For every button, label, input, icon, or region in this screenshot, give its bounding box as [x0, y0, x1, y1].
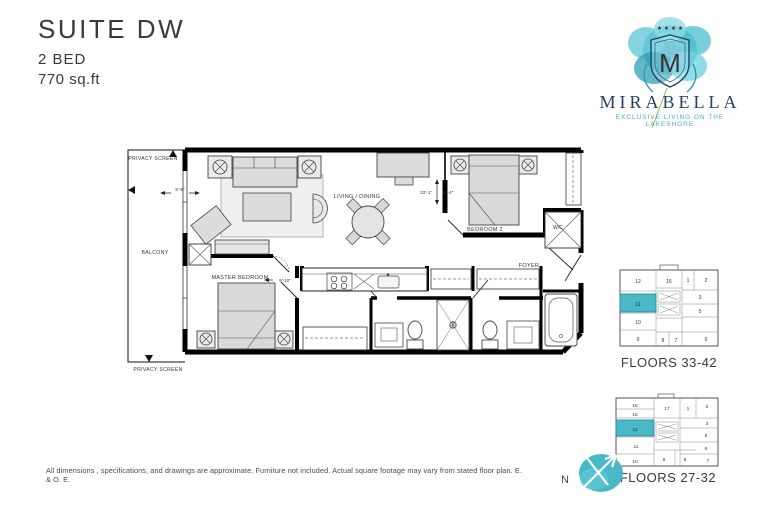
- unit-number: 1: [687, 278, 690, 284]
- logo-stars-icon: ★ ★ ★ ★: [657, 25, 684, 32]
- room-label-wc: W/C: [553, 225, 563, 231]
- main-bath: [375, 300, 469, 350]
- bedroom2-closet: [566, 153, 581, 205]
- unit-number: 8: [662, 338, 665, 344]
- unit-number: 9: [637, 337, 640, 343]
- room-label-bedroom2: BEDROOM 2: [467, 227, 503, 233]
- brand-tagline: EXCLUSIVE LIVING ON THE LAKESHORE: [595, 114, 745, 128]
- unit-number: 12: [635, 279, 641, 285]
- ensuite-bath: [482, 294, 577, 349]
- room-label-foyer: FOYER: [519, 263, 539, 269]
- floorplan-drawing: W/C: [115, 133, 605, 378]
- balcony-outline: [128, 150, 185, 362]
- unit-number: 1: [687, 406, 690, 412]
- keyplan-floors-33-42: 12 16 1 2 11 3 10 5 9 8 7 6: [616, 260, 722, 352]
- unit-number: 7: [675, 338, 678, 344]
- north-label: N: [561, 474, 569, 486]
- dim-living-depth: 11'-4": [442, 190, 454, 195]
- unit-number: 8: [684, 457, 687, 463]
- floorplan-sheet: SUITE DW 2 BED 770 sq.ft ★ ★ ★ ★ M MIRAB…: [0, 0, 760, 505]
- brand-logo: ★ ★ ★ ★ M MIRABELLA EXCLUSIVE LIVING ON …: [595, 6, 745, 130]
- unit-number: 2: [705, 278, 708, 284]
- disclaimer-text: All dimensions , specifications, and dra…: [46, 466, 526, 484]
- living-furniture: [191, 153, 429, 244]
- unit-number: 15: [632, 412, 638, 418]
- keyplan-caption-33-42: FLOORS 33-42: [599, 355, 739, 370]
- brand-name: MIRABELLA: [595, 92, 745, 113]
- unit-number: 3: [706, 421, 709, 427]
- dim-arrow-icon: [145, 355, 153, 362]
- unit-number: 2: [706, 404, 709, 410]
- privacy-screen-bottom-label: PRIVACY SCREEN: [133, 367, 182, 373]
- bed-count: 2 BED: [38, 51, 185, 68]
- unit-number: 10: [635, 320, 641, 326]
- unit-number: 6: [705, 446, 708, 452]
- dim-kitchen: 9'-10": [279, 278, 291, 283]
- kitchen: [302, 268, 427, 291]
- bedroom2-furniture: [451, 155, 537, 225]
- unit-number: 5: [699, 309, 702, 315]
- room-label-living-dining: LIVING / DINING: [334, 194, 380, 200]
- room-label-balcony: BALCONY: [142, 250, 169, 256]
- dim-living-width: 22'-1": [420, 190, 432, 195]
- dim-balcony-door: 5'-9": [175, 187, 185, 192]
- unit-number: 5: [705, 433, 708, 439]
- unit-number: 6: [705, 337, 708, 343]
- wc-closet: W/C: [545, 212, 581, 248]
- area-label: 770 sq.ft: [38, 71, 185, 88]
- unit-number-highlighted: 11: [635, 302, 640, 308]
- unit-number: 7: [707, 458, 710, 464]
- compass-icon: [563, 446, 635, 502]
- title-block: SUITE DW 2 BED 770 sq.ft: [38, 14, 185, 88]
- privacy-screen-top-label: PRIVACY SCREEN: [128, 156, 177, 162]
- unit-number-highlighted: 12: [632, 427, 638, 433]
- dim-arrow-icon: [128, 186, 135, 194]
- unit-number: 9: [663, 457, 666, 463]
- unit-number: 16: [666, 279, 672, 285]
- suite-title: SUITE DW: [38, 14, 185, 45]
- unit-number: 16: [632, 403, 638, 409]
- room-label-master-bedroom: MASTER BEDROOM: [211, 275, 268, 281]
- dining-set: [346, 199, 390, 245]
- logo-monogram: M: [659, 48, 681, 78]
- unit-number: 17: [664, 406, 670, 412]
- unit-number: 3: [699, 295, 702, 301]
